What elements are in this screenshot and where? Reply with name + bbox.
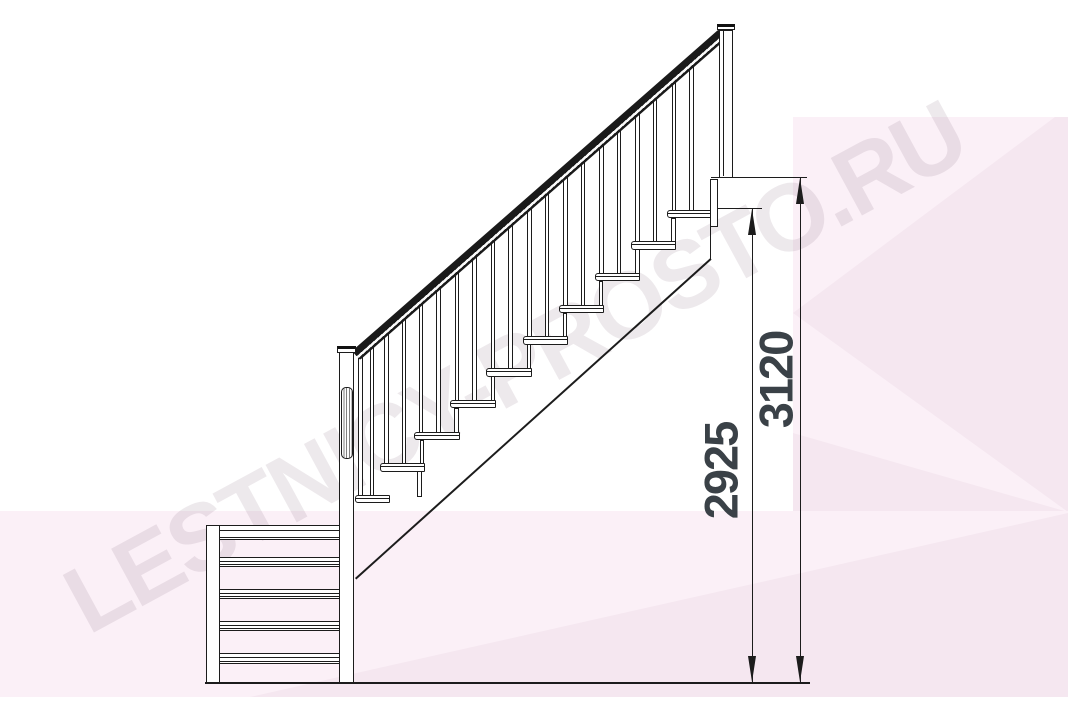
lower-step-inner-line <box>207 657 354 658</box>
lower-step-inner-line <box>207 596 339 597</box>
lower-step-inner-line <box>207 628 354 629</box>
lower-step-inner-line <box>207 530 339 531</box>
baluster <box>653 95 658 244</box>
stair-tread <box>559 305 605 314</box>
stair-tread <box>450 400 496 409</box>
lower-step-edge <box>206 525 340 541</box>
baluster <box>599 142 604 275</box>
baluster <box>370 343 375 496</box>
drawing-layer <box>0 0 1068 707</box>
lower-step-edge <box>206 589 340 599</box>
stair-tread <box>380 463 426 472</box>
lower-step-inner-line <box>207 625 354 626</box>
lower-step-edge <box>206 621 355 631</box>
lower-flight-left-post <box>206 525 221 684</box>
baluster <box>472 253 477 402</box>
step-support-bar <box>671 218 676 244</box>
lower-step-inner-line <box>207 564 339 565</box>
baluster <box>436 285 441 434</box>
dimension-label-flight-height: 2925 <box>694 423 749 520</box>
step-support-bar <box>420 440 425 466</box>
dimension-arrow-up <box>748 209 756 235</box>
top-newel-post <box>719 30 733 178</box>
lower-step-inner-line <box>207 593 339 594</box>
top-post-inner-line <box>723 31 724 176</box>
baluster <box>419 300 424 434</box>
step-support-bar <box>454 408 459 434</box>
landing-fascia-board <box>710 179 718 228</box>
newel-handle-detail <box>341 387 353 459</box>
stair-tread <box>486 368 532 377</box>
dimension-label-total-height: 3120 <box>748 332 803 429</box>
baluster <box>545 190 550 339</box>
stair-tread <box>355 495 390 504</box>
baluster <box>491 237 496 370</box>
dimension-arrow-down <box>796 656 804 682</box>
dimension-arrow-up <box>796 178 804 204</box>
step-support-bar <box>599 281 604 307</box>
bottom-newel-cap <box>337 346 356 353</box>
lower-step-inner-line <box>207 561 339 562</box>
stair-tread <box>523 336 569 345</box>
stair-tread <box>631 241 677 250</box>
baluster <box>402 315 407 465</box>
baluster <box>527 205 532 338</box>
baluster <box>455 268 460 401</box>
lower-step-edge <box>206 653 355 664</box>
baluster <box>384 330 389 465</box>
stair-tread <box>595 273 641 282</box>
baluster <box>617 126 622 275</box>
step-support-bar <box>635 249 640 275</box>
lower-step-edge <box>206 557 340 567</box>
stair-tread <box>414 432 460 441</box>
ground-line <box>205 682 810 684</box>
baluster <box>358 353 363 496</box>
baluster <box>689 63 694 212</box>
lower-step-inner-line <box>207 661 354 662</box>
lower-step-inner-line <box>207 537 339 538</box>
dimension-line <box>800 178 802 682</box>
stair-tread <box>667 210 713 219</box>
staircase-drawing-canvas: LESTNICY-PROSTO.RU 2925 3120 <box>0 0 1068 707</box>
step-support-bar <box>491 376 496 402</box>
step-support-bar <box>563 313 568 339</box>
step-support-bar <box>417 471 422 497</box>
baluster <box>508 221 513 370</box>
dimension-line <box>752 209 754 682</box>
dimension-arrow-down <box>748 656 756 682</box>
baluster <box>563 173 568 306</box>
baluster <box>635 110 640 243</box>
baluster <box>581 158 586 307</box>
baluster <box>672 78 677 211</box>
step-support-bar <box>527 344 532 370</box>
